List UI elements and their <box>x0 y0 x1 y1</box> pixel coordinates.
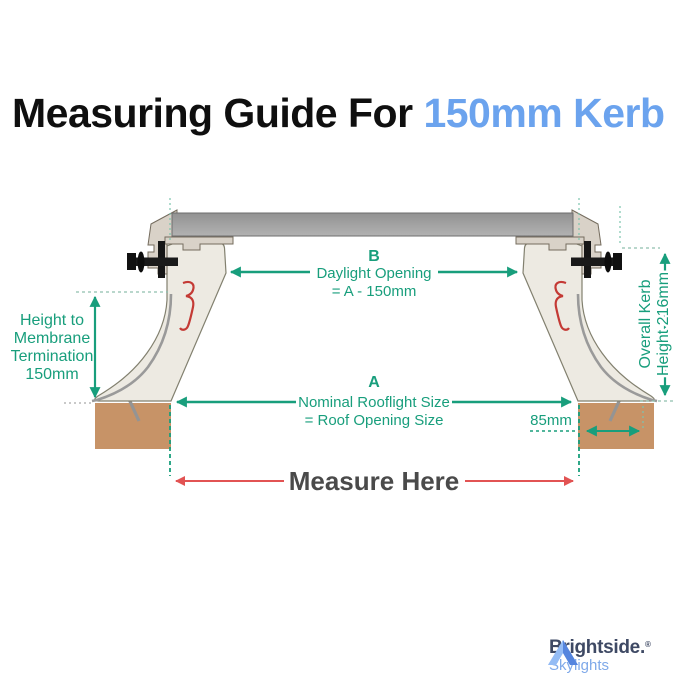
dimension-overall-kerb-height: Overall Kerb Height 216mm <box>620 206 673 401</box>
dim-b-line2: = A - 150mm <box>332 283 417 300</box>
dim-a-line2: = Roof Opening Size <box>305 412 444 429</box>
dim-membrane-line2: Membrane <box>14 330 91 347</box>
dim-b-line1: Daylight Opening <box>316 265 431 282</box>
dim-kerb-height-line2: Height 216mm <box>655 272 672 376</box>
dim-membrane-line1: Height to <box>20 312 84 329</box>
brightside-logo-icon <box>546 638 582 666</box>
dimension-nominal-rooflight-size: A Nominal Rooflight Size = Roof Opening … <box>177 374 571 429</box>
dim-a-letter: A <box>368 374 380 391</box>
dim-85mm-label: 85mm <box>530 412 572 429</box>
dim-b-letter: B <box>368 248 380 265</box>
dim-kerb-height-line1: Overall Kerb <box>637 279 654 368</box>
brand-logo: Brightside.® Skylights <box>546 638 651 673</box>
measure-here-label: Measure Here <box>289 466 460 496</box>
dim-membrane-line3: Termination <box>11 348 94 365</box>
dim-membrane-line4: 150mm <box>25 366 78 383</box>
kerb-assembly-right <box>516 198 657 476</box>
measure-here-callout: Measure Here <box>176 466 573 496</box>
glass-panel <box>172 213 573 236</box>
kerb-assembly-left <box>92 198 233 476</box>
logo-registered-mark: ® <box>645 640 651 649</box>
dimension-daylight-opening: B Daylight Opening = A - 150mm <box>231 248 517 300</box>
kerb-cross-section-diagram: B Daylight Opening = A - 150mm A Nominal… <box>0 0 700 700</box>
dim-a-line1: Nominal Rooflight Size <box>298 394 450 411</box>
